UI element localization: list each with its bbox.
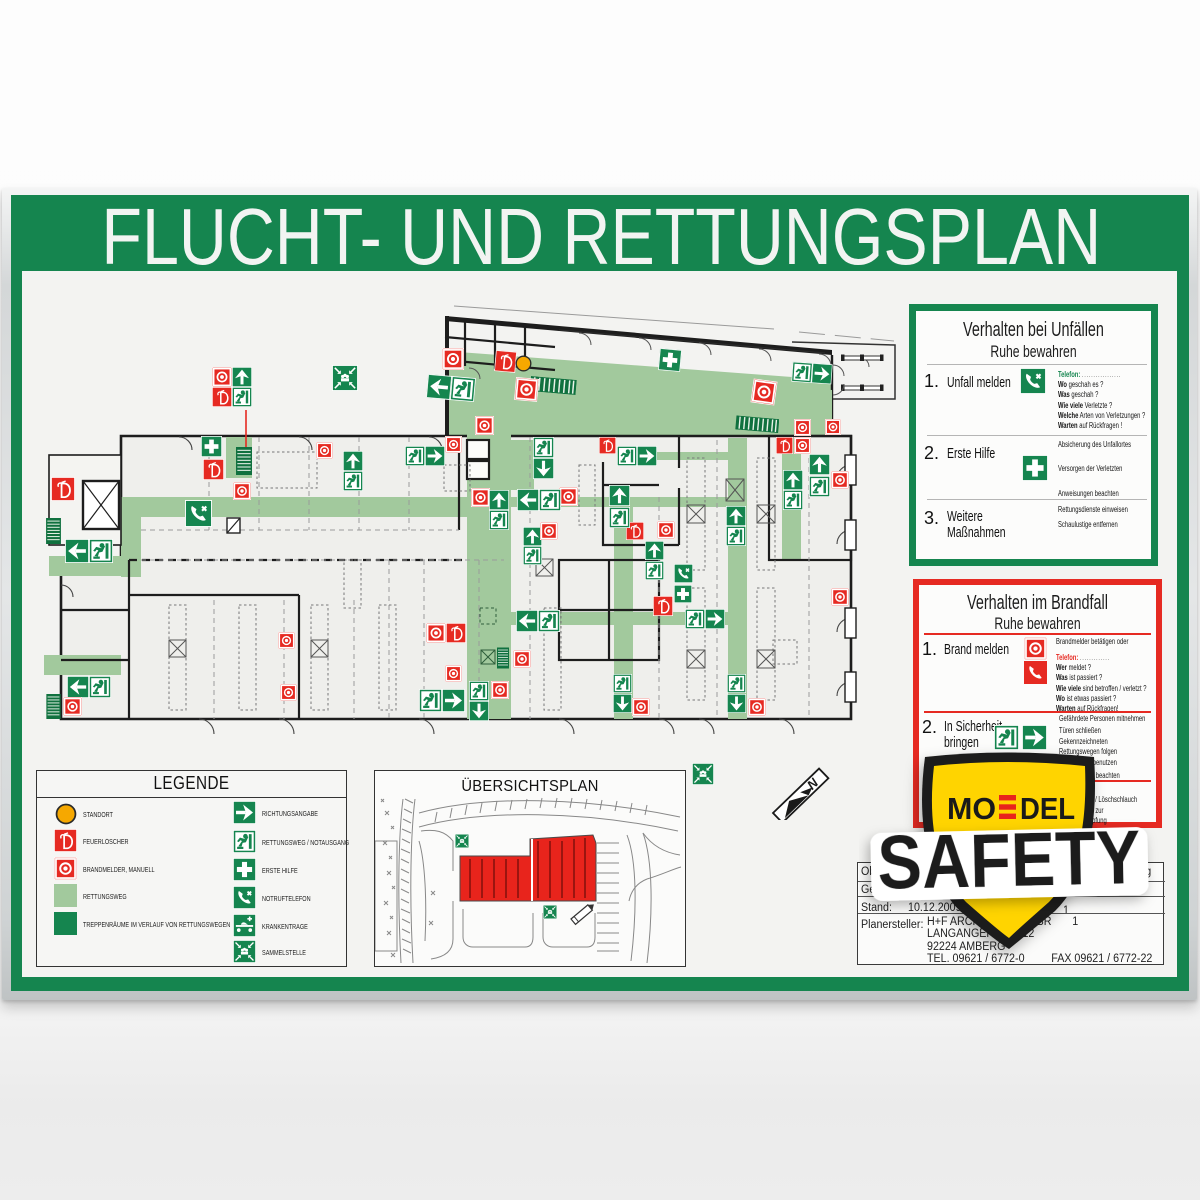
svg-text:SAFETY: SAFETY <box>876 815 1141 906</box>
